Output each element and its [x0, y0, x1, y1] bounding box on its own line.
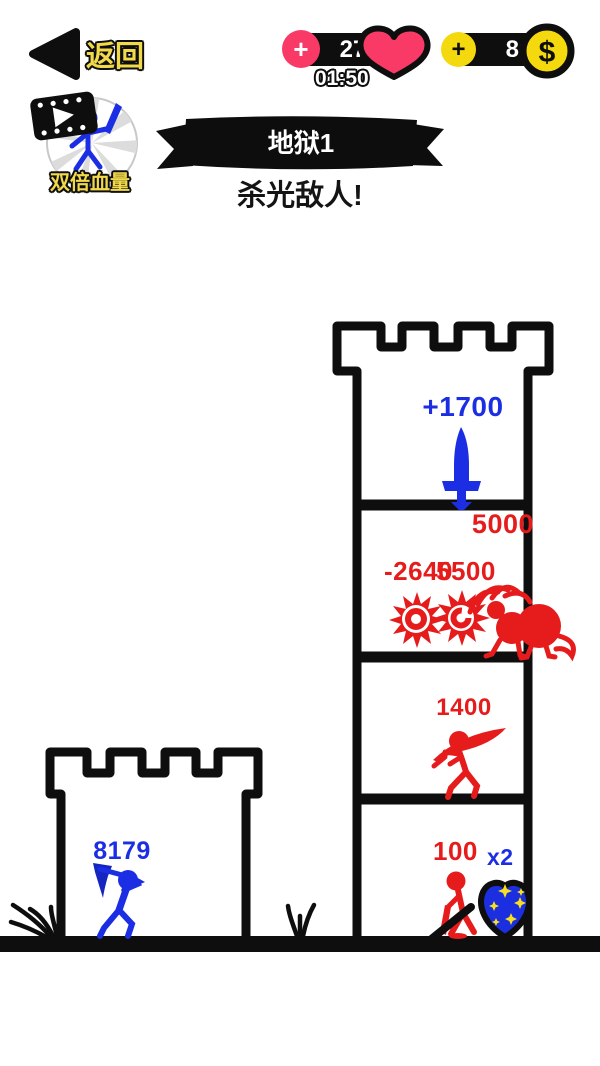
objective-text: 杀光敌人!	[0, 172, 600, 214]
game-screen: 返回 + 27 01:50 + 80 $	[0, 0, 600, 1066]
level-banner: 地狱1	[153, 111, 449, 173]
floor-warrior-hp: 1400	[425, 694, 503, 722]
level-title: 地狱1	[153, 123, 449, 160]
add-health-button[interactable]: +	[282, 30, 320, 68]
floor-top-attack-bonus: +1700	[402, 391, 524, 423]
back-arrow-icon	[26, 27, 82, 81]
add-coins-label: +	[451, 36, 465, 64]
blue-axeman-icon	[93, 863, 145, 936]
coin-symbol: $	[539, 36, 556, 69]
player-castle-hp: 8179	[87, 837, 157, 866]
monster-hp: 5500	[436, 556, 496, 587]
coin-counter: + 80 $	[438, 22, 580, 82]
floor-ground-multiplier: x2	[487, 844, 514, 871]
level-timer: 01:50	[315, 67, 369, 91]
add-health-label: +	[293, 34, 308, 65]
film-play-icon	[29, 91, 98, 141]
floor-monsters-hp-total: 5000	[448, 509, 534, 540]
back-button-label: 返回	[86, 33, 144, 75]
tower-floor-warrior-zone[interactable]	[363, 663, 528, 794]
health-counter: + 27 01:50	[282, 22, 437, 96]
grass-tuft-left	[11, 905, 57, 937]
add-coins-button[interactable]: +	[441, 32, 476, 67]
grass-tuft-center	[288, 905, 314, 937]
coin-icon: $	[516, 20, 578, 82]
back-button[interactable]: 返回	[26, 27, 144, 81]
floor-ground-hp: 100	[433, 836, 478, 867]
